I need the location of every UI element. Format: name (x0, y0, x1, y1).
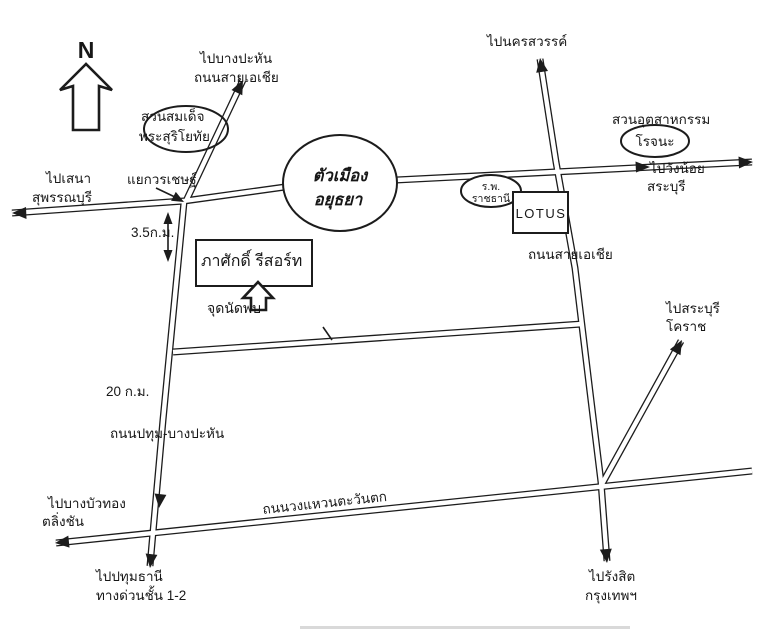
label-to-bang-bua-line2: ตลิ่งชัน (42, 512, 84, 529)
label-to-sena-line2: สุพรรณบุรี (32, 190, 92, 206)
label-to-pathum-line2: ทางด่วนชั้น 1-2 (96, 585, 186, 603)
label-to-bang-bua-line1: ไปบางบัวทอง (47, 496, 126, 511)
label-resort: ภาศักดิ์ รีสอร์ท (201, 249, 302, 270)
label-to-pathum-line1: ไปปทุมธานี (95, 569, 163, 585)
label-distance-20: 20 ก.ม. (106, 384, 149, 399)
label-to-wang-noi-line1: ไปวังน้อย (649, 161, 705, 176)
route-map-svg: N ไปบางปะหัน ถนนสายเอเชีย ไปนครสวรรค์ สว… (0, 0, 760, 634)
label-junction: แยกวรเชษฐ์ (127, 171, 197, 188)
label-lotus: LOTUS (516, 206, 567, 221)
label-city-line1: ตัวเมือง (313, 166, 369, 185)
label-to-sena-line1: ไปเสนา (45, 171, 91, 186)
distance-3-5-arrow-down (164, 250, 173, 262)
north-arrow: N (60, 37, 112, 130)
label-hospital-line2: ราชธานี (472, 192, 510, 205)
arrowhead-to-sena (12, 207, 27, 219)
label-to-saraburi-line1: ไปสระบุรี (665, 301, 720, 317)
label-industrial-line1: สวนอุตสาหกรรม (612, 112, 710, 128)
label-to-saraburi-line2: โคราช (666, 318, 706, 334)
label-to-rangsit-line2: กรุงเทพฯ (585, 588, 637, 604)
label-asia-road-right: ถนนสายเอเชีย (528, 247, 613, 262)
label-suriyothai-line1: สวนสมเด็จ (141, 107, 204, 124)
label-city-line2: อยุธยา (314, 191, 363, 210)
label-hospital-line1: ร.พ. (482, 181, 500, 193)
labels: ไปบางปะหัน ถนนสายเอเชีย ไปนครสวรรค์ สวนส… (32, 33, 720, 604)
arrowhead-to-wang-noi (739, 157, 754, 169)
scan-artifact (300, 626, 630, 629)
label-meeting-point: จุดนัดพบ (207, 300, 261, 317)
map-page: N ไปบางปะหัน ถนนสายเอเชีย ไปนครสวรรค์ สว… (0, 0, 760, 634)
north-label: N (78, 37, 95, 63)
road-rojana-city-surface (184, 187, 285, 201)
label-distance-3-5: 3.5ก.ม. (131, 225, 174, 240)
road-middle-connector-surface (173, 324, 582, 352)
label-to-wang-noi-line2: สระบุรี (647, 179, 686, 195)
label-to-nakhon-sawan: ไปนครสวรรค์ (486, 33, 567, 49)
distance-3-5-arrow-up (164, 212, 173, 224)
label-industrial-line2: โรจนะ (636, 133, 675, 149)
label-pathum-road: ถนนปทุม-บางปะหัน (110, 426, 224, 442)
north-arrow-shape (60, 64, 112, 130)
label-to-rangsit-line1: ไปรังสิต (588, 569, 635, 584)
label-to-bang-pahan-line1: ไปบางปะหัน (199, 51, 272, 66)
label-to-bang-pahan-line2: ถนนสายเอเชีย (194, 70, 279, 85)
road-saraburi-spur-surface (602, 341, 681, 484)
label-suriyothai-line2: พระสุริโยทัย (139, 128, 210, 145)
